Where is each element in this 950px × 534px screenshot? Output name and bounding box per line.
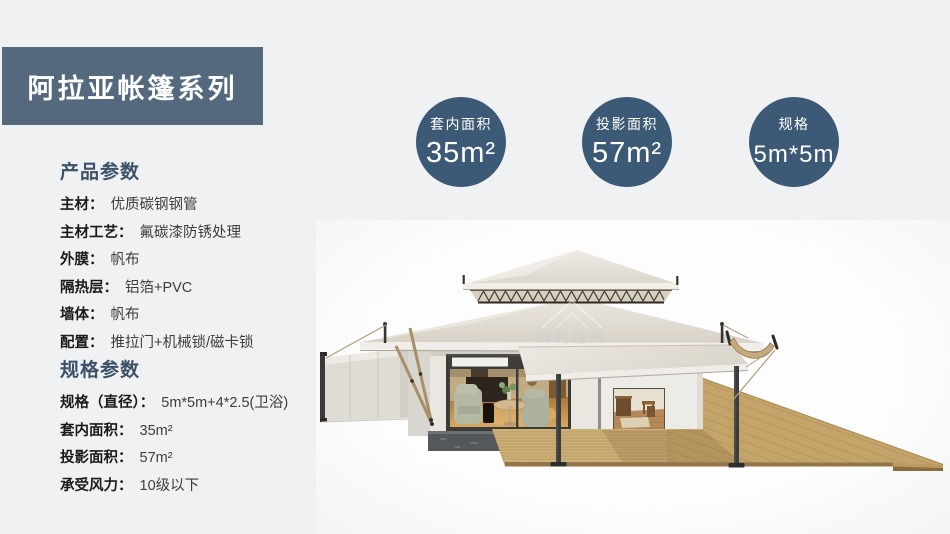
product-params-title: 产品参数 — [60, 157, 254, 184]
doorway — [613, 388, 665, 434]
param-value: 帆布 — [111, 252, 140, 268]
param-value: 氟碳漆防锈处理 — [140, 225, 242, 241]
badge-label: 规格 — [749, 114, 839, 134]
product-params-section: 产品参数 主材：优质碳钢钢管 主材工艺：氟碳漆防锈处理 外膜：帆布 隔热层：铝箔… — [60, 157, 254, 357]
cap-roof — [463, 250, 679, 303]
param-label: 投影面积： — [60, 450, 133, 466]
title-band: 阿拉亚帐篷系列 — [2, 47, 263, 125]
wing-wall-gap — [408, 346, 432, 436]
badge-value: 35m² — [416, 137, 506, 170]
param-value: 优质碳钢钢管 — [111, 197, 198, 213]
param-label: 规格（直径）： — [60, 395, 154, 411]
param-row: 套内面积：35m² — [60, 418, 288, 446]
bedroom-interior — [614, 389, 664, 433]
spec-params-section: 规格参数 规格（直径）：5m*5m+4*2.5(卫浴) 套内面积：35m² 投影… — [60, 355, 288, 500]
param-row: 外膜：帆布 — [60, 247, 254, 275]
page-title: 阿拉亚帐篷系列 — [28, 67, 238, 106]
param-row: 主材：优质碳钢钢管 — [60, 192, 254, 220]
param-value: 铝箔+PVC — [125, 280, 192, 296]
param-label: 隔热层： — [60, 280, 118, 296]
param-row: 主材工艺：氟碳漆防锈处理 — [60, 220, 254, 248]
param-value: 57m² — [140, 450, 173, 466]
param-label: 墙体： — [60, 307, 104, 323]
param-row: 承受风力：10级以下 — [60, 473, 288, 501]
param-value: 帆布 — [111, 307, 140, 323]
badge-value: 5m*5m — [749, 141, 839, 169]
side-wing — [320, 348, 408, 422]
param-label: 主材工艺： — [60, 225, 133, 241]
param-label: 配置： — [60, 335, 104, 351]
param-row: 投影面积：57m² — [60, 445, 288, 473]
param-label: 套内面积： — [60, 423, 133, 439]
param-value: 35m² — [140, 423, 173, 439]
porch-awning — [518, 345, 748, 382]
param-label: 主材： — [60, 197, 104, 213]
badge-value: 57m² — [582, 137, 672, 170]
param-label: 承受风力： — [60, 478, 133, 494]
badge-label: 投影面积 — [582, 114, 672, 134]
watermark-cn: 恒利篷房 — [536, 328, 608, 346]
badge-inner-area: 套内面积 35m² — [416, 97, 506, 187]
param-value: 10级以下 — [140, 478, 200, 494]
spec-params-title: 规格参数 — [60, 355, 288, 382]
param-label: 外膜： — [60, 252, 104, 268]
param-value: 推拉门+机械锁/磁卡锁 — [111, 335, 254, 351]
badge-size: 规格 5m*5m — [749, 97, 839, 187]
badge-label: 套内面积 — [416, 114, 506, 134]
param-row: 墙体：帆布 — [60, 302, 254, 330]
slide: 阿拉亚帐篷系列 产品参数 主材：优质碳钢钢管 主材工艺：氟碳漆防锈处理 外膜：帆… — [0, 0, 950, 534]
badge-projection-area: 投影面积 57m² — [582, 97, 672, 187]
param-value: 5m*5m+4*2.5(卫浴) — [161, 395, 288, 411]
param-row: 规格（直径）：5m*5m+4*2.5(卫浴) — [60, 390, 288, 418]
tent-illustration: 恒利篷房 WELL TENT — [320, 228, 950, 534]
param-row: 配置：推拉门+机械锁/磁卡锁 — [60, 330, 254, 358]
param-row: 隔热层：铝箔+PVC — [60, 275, 254, 303]
